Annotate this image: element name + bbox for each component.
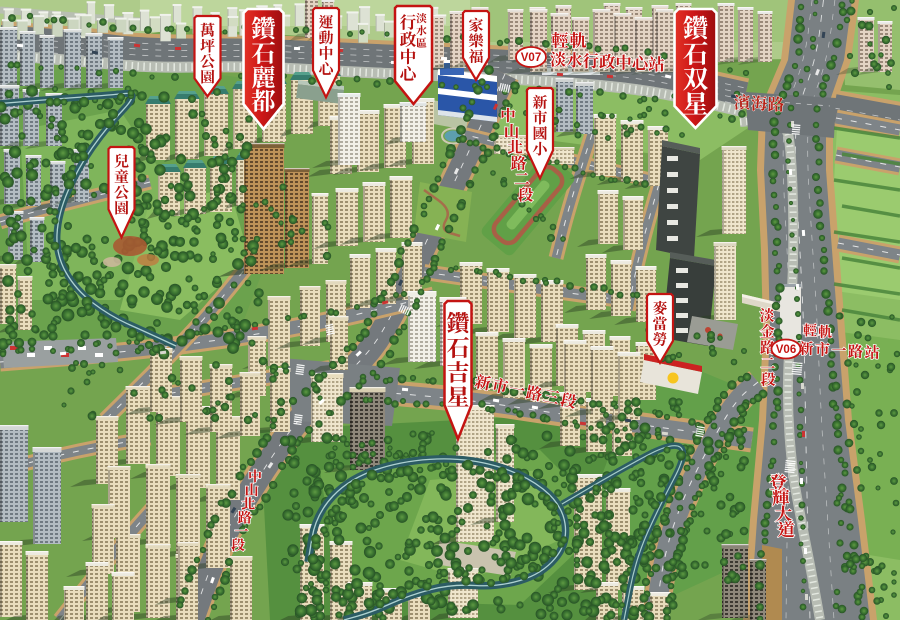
svg-text:V06: V06	[776, 344, 796, 356]
svg-text:V07: V07	[521, 52, 541, 64]
